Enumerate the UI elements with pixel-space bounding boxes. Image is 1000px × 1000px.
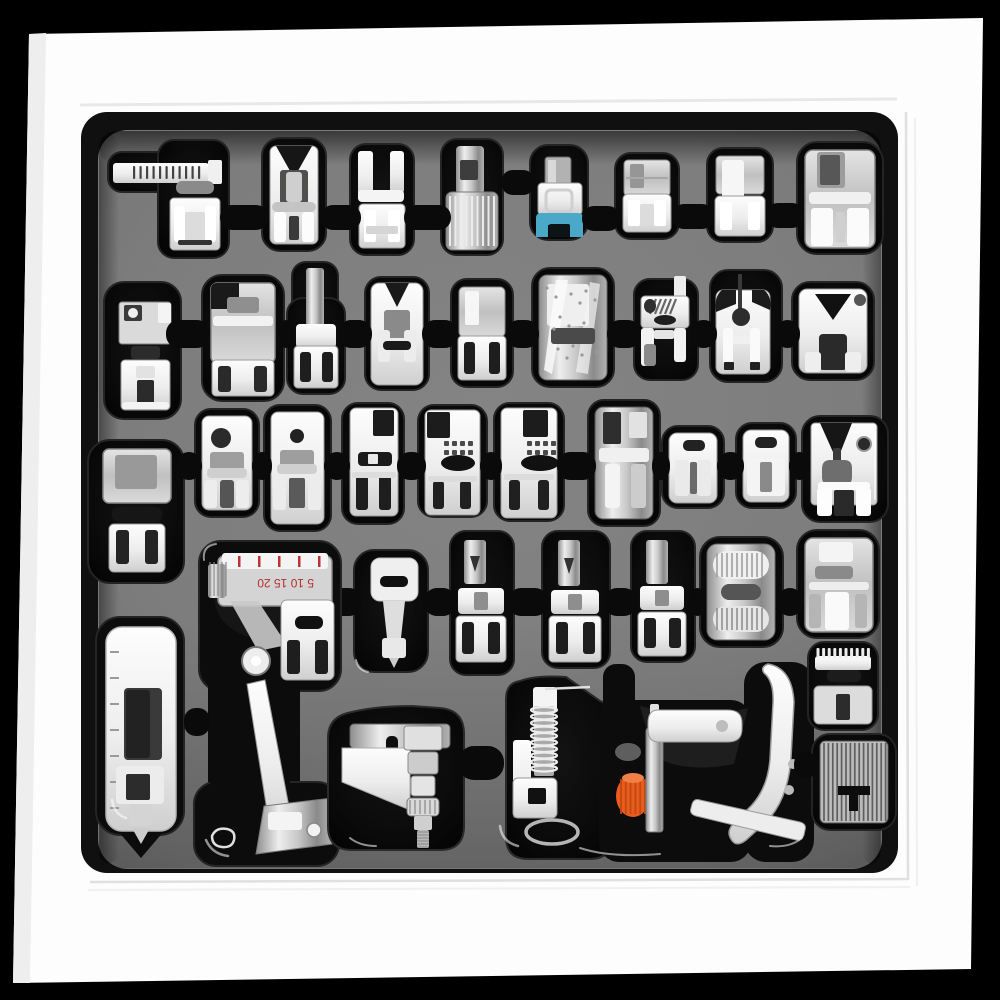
svg-text:5 10 15 20: 5 10 15 20: [257, 576, 314, 590]
